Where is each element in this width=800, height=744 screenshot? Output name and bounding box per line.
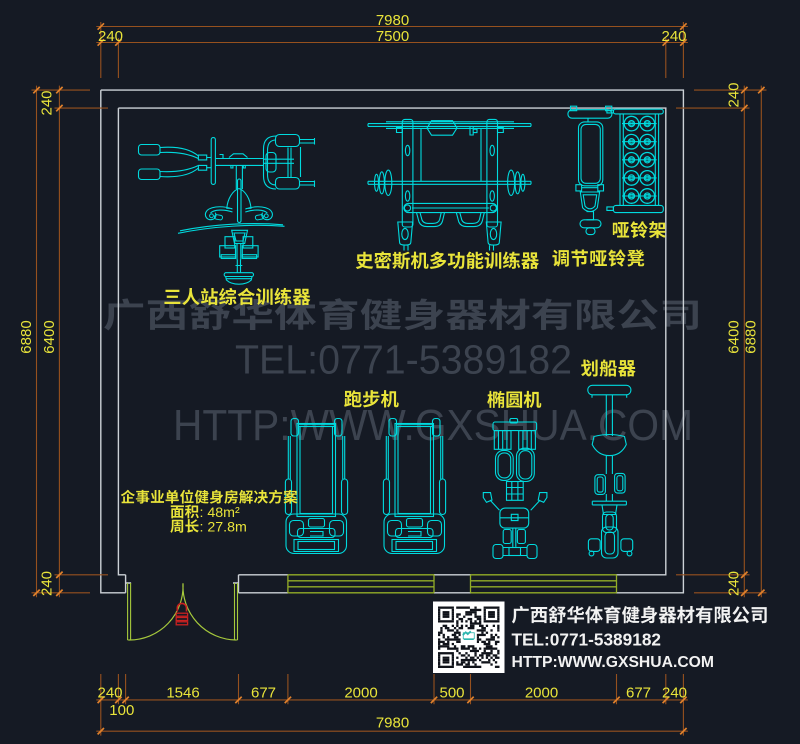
svg-text:6880: 6880 [743, 320, 760, 353]
svg-text:TEL:0771-5389182: TEL:0771-5389182 [235, 337, 572, 383]
svg-text:2000: 2000 [344, 685, 377, 702]
svg-text:7980: 7980 [376, 715, 409, 732]
svg-text:6880: 6880 [18, 320, 35, 353]
svg-text:TEL:0771-5389182: TEL:0771-5389182 [512, 630, 662, 650]
svg-text:677: 677 [251, 685, 276, 702]
svg-text:7500: 7500 [376, 28, 409, 45]
svg-text:: 27.8m: : 27.8m [200, 520, 247, 536]
svg-text:240: 240 [39, 90, 56, 115]
svg-text:500: 500 [439, 685, 464, 702]
svg-text:1546: 1546 [166, 685, 199, 702]
svg-text:2000: 2000 [525, 685, 558, 702]
svg-text:6400: 6400 [41, 320, 58, 353]
svg-text:240: 240 [726, 82, 743, 107]
svg-text:240: 240 [726, 571, 743, 596]
svg-text:677: 677 [626, 685, 651, 702]
svg-text:240: 240 [661, 28, 686, 45]
svg-text:6400: 6400 [726, 320, 743, 353]
svg-text:100: 100 [109, 702, 134, 719]
svg-text:7980: 7980 [376, 12, 409, 29]
svg-text:240: 240 [98, 28, 123, 45]
svg-text:240: 240 [97, 685, 122, 702]
svg-text:240: 240 [662, 685, 687, 702]
svg-text:HTTP:WWW.GXSHUA.COM: HTTP:WWW.GXSHUA.COM [512, 654, 715, 671]
svg-text:240: 240 [39, 571, 56, 596]
